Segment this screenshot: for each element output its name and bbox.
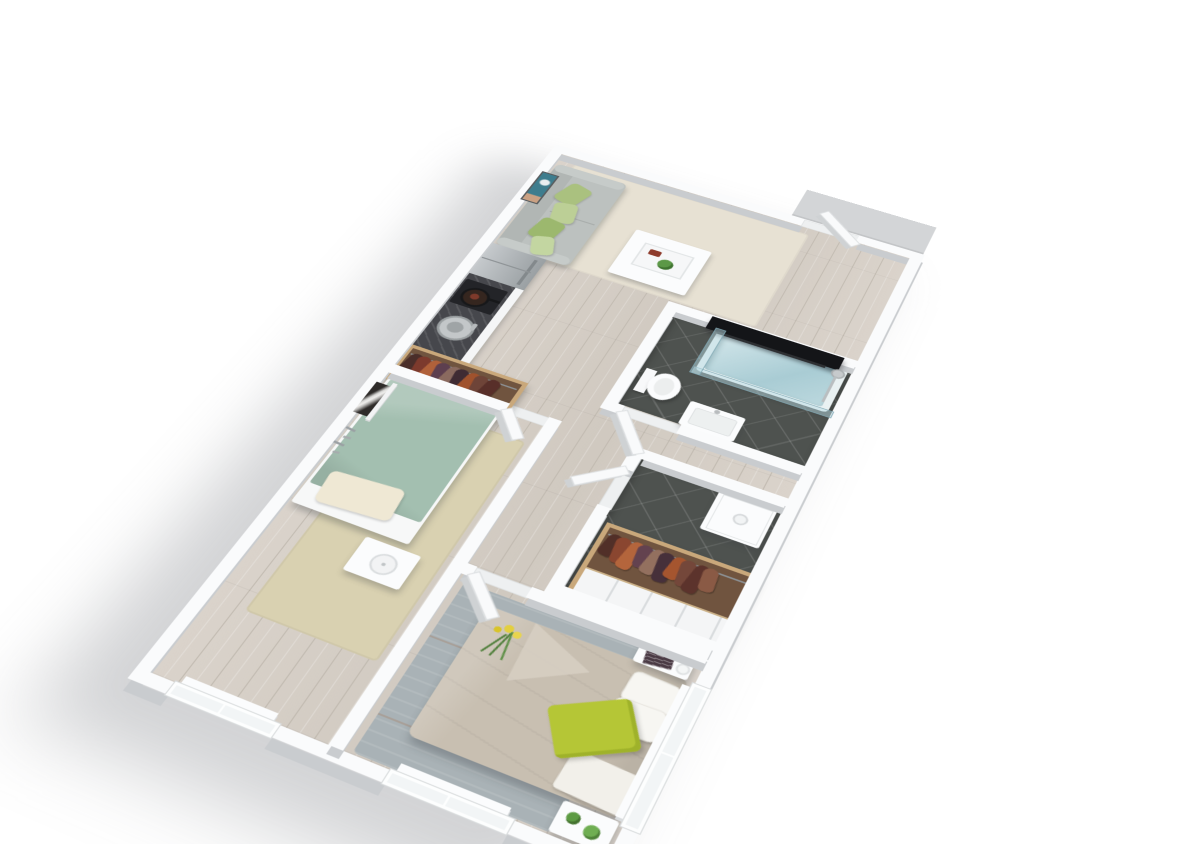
pan-food	[468, 293, 480, 301]
potted-plant-2	[580, 823, 603, 843]
green-pillow-4	[530, 235, 556, 255]
fridge-door-split	[481, 257, 531, 274]
floorplan-render-canvas: { "meta": { "title": "3D isometric floor…	[0, 0, 1194, 844]
table-lamp	[364, 550, 402, 578]
chartreuse-pillow	[547, 699, 642, 759]
apartment-3d-scene	[127, 145, 924, 844]
toilet-seat	[650, 376, 678, 398]
potted-plant-1	[564, 810, 583, 827]
flower-bloom	[511, 631, 523, 640]
pan-handle	[488, 298, 501, 304]
flower-bloom	[493, 625, 503, 633]
sink-basin	[444, 320, 467, 335]
lamp-stem	[381, 562, 387, 566]
